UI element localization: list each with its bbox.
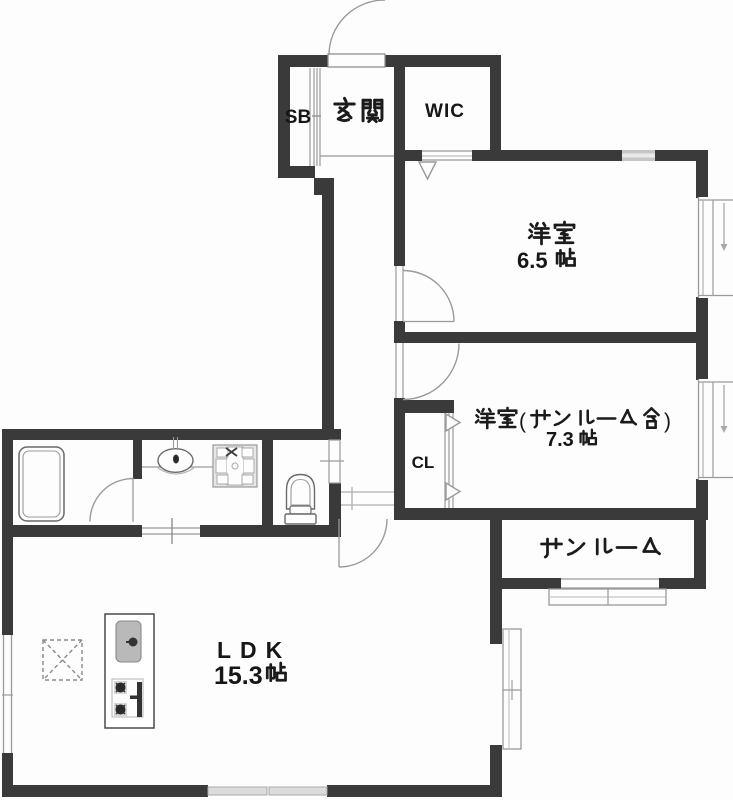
svg-text:LDK: LDK [217,637,291,663]
svg-text:7.3: 7.3 [546,429,574,451]
svg-text:(: ( [519,410,526,433]
svg-text:SB: SB [285,107,311,128]
svg-text:CL: CL [412,453,435,472]
svg-text:15.3: 15.3 [214,662,263,690]
svg-text:): ) [664,410,671,433]
svg-text:WIC: WIC [425,101,465,122]
svg-text:6.5: 6.5 [517,248,548,273]
